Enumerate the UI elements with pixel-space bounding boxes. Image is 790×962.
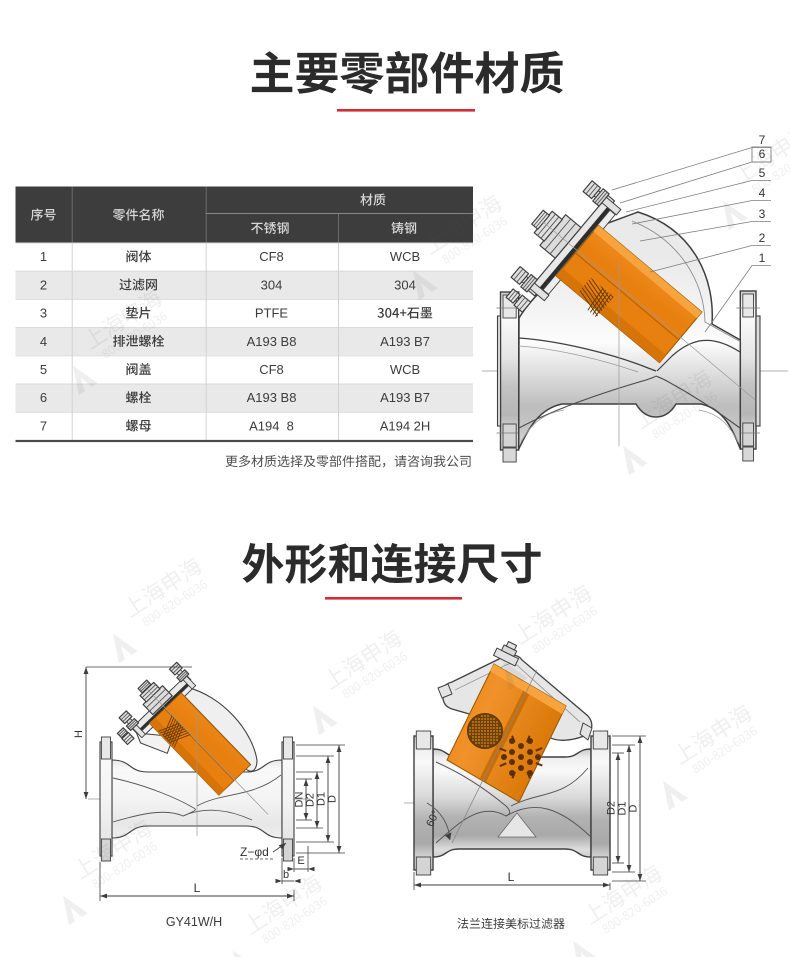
svg-text:7: 7 — [759, 133, 766, 147]
svg-text:CF8: CF8 — [259, 362, 284, 377]
svg-text:WCB: WCB — [390, 249, 420, 264]
svg-text:E: E — [297, 855, 304, 867]
svg-text:GY41W/H: GY41W/H — [166, 915, 222, 929]
svg-text:A194 2H: A194 2H — [380, 418, 431, 433]
svg-text:A194 8: A194 8 — [249, 418, 294, 433]
svg-text:H: H — [73, 730, 85, 738]
svg-text:1: 1 — [40, 249, 47, 264]
svg-text:2: 2 — [40, 277, 47, 292]
svg-text:WCB: WCB — [390, 362, 420, 377]
svg-text:2: 2 — [759, 231, 766, 245]
svg-text:b: b — [283, 869, 289, 881]
svg-text:3: 3 — [759, 207, 766, 221]
svg-text:A193 B7: A193 B7 — [380, 334, 430, 349]
svg-text:7: 7 — [40, 418, 47, 433]
svg-text:1: 1 — [759, 251, 766, 265]
svg-text:D: D — [628, 804, 640, 812]
svg-text:3: 3 — [40, 306, 47, 321]
svg-text:304: 304 — [394, 277, 416, 292]
svg-text:5: 5 — [40, 362, 47, 377]
svg-text:L: L — [508, 870, 515, 884]
svg-text:CF8: CF8 — [259, 249, 284, 264]
svg-text:PTFE: PTFE — [255, 306, 289, 321]
svg-text:4: 4 — [40, 334, 47, 349]
svg-text:304: 304 — [261, 277, 283, 292]
svg-text:L: L — [194, 881, 201, 895]
svg-text:A193 B7: A193 B7 — [380, 390, 430, 405]
svg-text:A193 B8: A193 B8 — [247, 390, 297, 405]
svg-text:A193 B8: A193 B8 — [247, 334, 297, 349]
svg-text:6: 6 — [40, 390, 47, 405]
svg-text:Z−φd: Z−φd — [240, 845, 269, 859]
svg-text:D: D — [327, 795, 339, 803]
